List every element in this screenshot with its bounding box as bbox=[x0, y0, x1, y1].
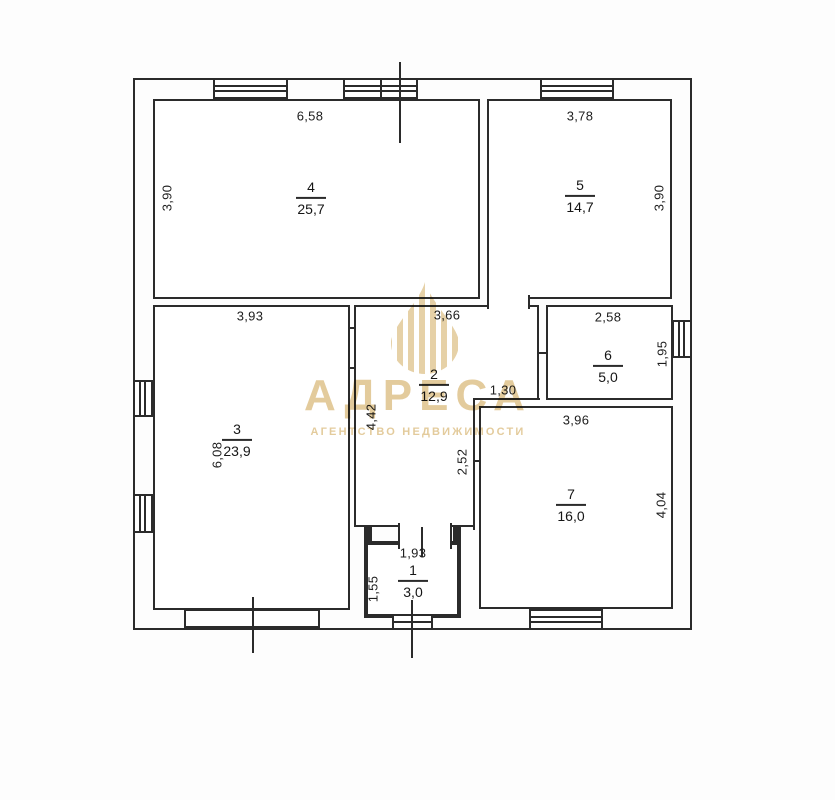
dim-room7-width: 3,96 bbox=[563, 413, 590, 428]
room-area: 3,0 bbox=[403, 584, 422, 600]
room-number: 3 bbox=[233, 421, 241, 437]
dim-room6-height: 1,95 bbox=[655, 341, 670, 368]
room-number: 7 bbox=[567, 486, 575, 502]
room-5-label: 5 14,7 bbox=[565, 177, 595, 215]
door-opening-room5 bbox=[487, 295, 530, 309]
wall-junction-tick bbox=[348, 327, 356, 329]
window-divider bbox=[380, 78, 382, 99]
label-divider bbox=[556, 504, 586, 506]
room-area: 12,9 bbox=[420, 388, 447, 404]
dim-notch-height: 2,52 bbox=[455, 449, 470, 476]
room-number: 5 bbox=[576, 177, 584, 193]
room-area: 25,7 bbox=[297, 201, 324, 217]
label-divider bbox=[419, 384, 449, 386]
window-left-1 bbox=[133, 380, 153, 417]
wall-pier bbox=[364, 527, 372, 542]
dim-room5-height: 3,90 bbox=[652, 185, 667, 212]
floor-plan: 6,58 3,90 3,78 3,90 3,93 6,08 3,66 4,42 … bbox=[0, 0, 835, 800]
label-divider bbox=[398, 580, 428, 582]
dimension-tick bbox=[252, 597, 254, 653]
room-area: 5,0 bbox=[598, 369, 617, 385]
room-area: 14,7 bbox=[566, 199, 593, 215]
dim-room7-height: 4,04 bbox=[654, 492, 669, 519]
wall-junction-tick bbox=[473, 460, 481, 462]
room-number: 4 bbox=[307, 179, 315, 195]
wall-pier bbox=[453, 527, 461, 542]
room-area: 23,9 bbox=[223, 443, 250, 459]
window-top-1 bbox=[213, 78, 288, 99]
room-2-label: 2 12,9 bbox=[419, 366, 449, 404]
dim-room2-height: 4,42 bbox=[364, 404, 379, 431]
window-right-1 bbox=[672, 320, 692, 358]
dimension-tick bbox=[399, 62, 401, 143]
label-divider bbox=[593, 365, 623, 367]
dim-room4-width: 6,58 bbox=[297, 109, 324, 124]
room-7-label: 7 16,0 bbox=[556, 486, 586, 524]
dim-room2-width: 3,66 bbox=[434, 308, 461, 323]
room-number: 1 bbox=[409, 562, 417, 578]
wall-junction-tick bbox=[537, 352, 548, 354]
room-number: 6 bbox=[604, 347, 612, 363]
wall-junction-tick bbox=[348, 367, 356, 369]
window-top-3 bbox=[540, 78, 614, 99]
dimension-tick bbox=[411, 600, 413, 658]
window-left-2 bbox=[133, 494, 153, 533]
dim-room4-height: 3,90 bbox=[160, 185, 175, 212]
room-area: 16,0 bbox=[557, 508, 584, 524]
room-4-label: 4 25,7 bbox=[296, 179, 326, 217]
room-3-label: 3 23,9 bbox=[222, 421, 252, 459]
room-number: 2 bbox=[430, 366, 438, 382]
label-divider bbox=[222, 439, 252, 441]
dim-room6-width: 2,58 bbox=[595, 310, 622, 325]
dim-notch-width: 1,30 bbox=[490, 383, 517, 398]
dim-room1-height: 1,55 bbox=[366, 576, 381, 603]
room-6-label: 6 5,0 bbox=[593, 347, 623, 385]
dim-room5-width: 3,78 bbox=[567, 109, 594, 124]
dim-room3-width: 3,93 bbox=[237, 309, 264, 324]
label-divider bbox=[296, 197, 326, 199]
window-bottom-1 bbox=[529, 609, 603, 630]
label-divider bbox=[565, 195, 595, 197]
dim-room1-width: 1,93 bbox=[400, 546, 427, 561]
room-1-label: 1 3,0 bbox=[398, 562, 428, 600]
